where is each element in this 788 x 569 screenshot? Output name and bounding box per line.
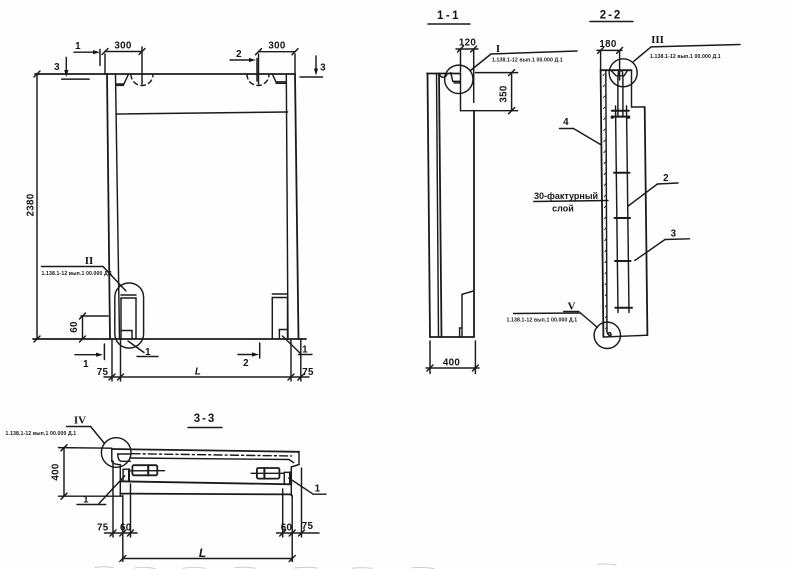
svg-text:L: L	[199, 546, 206, 560]
svg-text:3: 3	[54, 62, 60, 73]
svg-text:1.138.1-12 вып.1 00.000 Д.1: 1.138.1-12 вып.1 00.000 Д.1	[507, 318, 578, 324]
svg-text:2: 2	[236, 49, 242, 60]
svg-text:300: 300	[268, 41, 285, 52]
svg-text:350: 350	[499, 85, 510, 102]
svg-text:60: 60	[120, 523, 132, 534]
svg-text:3: 3	[671, 229, 677, 240]
svg-text:1.138.1-12 вып.1 00.000 Д.1: 1.138.1-12 вып.1 00.000 Д.1	[42, 271, 113, 277]
svg-text:1: 1	[145, 347, 151, 358]
svg-text:75: 75	[97, 523, 109, 534]
svg-text:3: 3	[320, 63, 326, 74]
svg-text:2-2: 2-2	[600, 10, 623, 22]
svg-text:2: 2	[243, 358, 249, 369]
svg-text:I: I	[496, 43, 500, 55]
svg-text:2: 2	[663, 173, 669, 184]
svg-text:L: L	[195, 367, 201, 378]
svg-text:слой: слой	[552, 204, 574, 214]
svg-text:1.138.1-12 вып.1 00.000 Д.1: 1.138.1-12 вып.1 00.000 Д.1	[492, 58, 563, 64]
svg-text:75: 75	[97, 367, 109, 378]
svg-text:III: III	[651, 34, 664, 46]
svg-text:300: 300	[114, 41, 131, 52]
svg-text:60: 60	[69, 321, 80, 333]
svg-text:II: II	[85, 255, 94, 267]
svg-text:400: 400	[51, 463, 62, 480]
svg-text:2380: 2380	[26, 193, 37, 216]
svg-text:V: V	[568, 301, 576, 313]
svg-text:60: 60	[281, 523, 293, 534]
svg-text:IV: IV	[74, 415, 86, 427]
svg-text:1-1: 1-1	[437, 10, 461, 22]
svg-text:1: 1	[75, 41, 81, 52]
svg-text:400: 400	[443, 358, 460, 369]
svg-text:1: 1	[302, 345, 308, 356]
svg-text:1: 1	[315, 484, 321, 495]
svg-text:75: 75	[302, 367, 314, 378]
svg-text:1: 1	[83, 359, 89, 370]
svg-text:30-фактурный: 30-фактурный	[534, 191, 598, 201]
svg-text:75: 75	[302, 521, 314, 532]
svg-text:3-3: 3-3	[194, 413, 217, 425]
svg-text:1.138.1-12 вып.1 00.000 Д.1: 1.138.1-12 вып.1 00.000 Д.1	[6, 431, 77, 437]
svg-text:1.138.1-12 вып.1 00.000 Д.1: 1.138.1-12 вып.1 00.000 Д.1	[650, 54, 721, 60]
svg-text:4: 4	[563, 117, 569, 128]
svg-text:120: 120	[459, 38, 476, 49]
svg-text:180: 180	[599, 39, 616, 50]
